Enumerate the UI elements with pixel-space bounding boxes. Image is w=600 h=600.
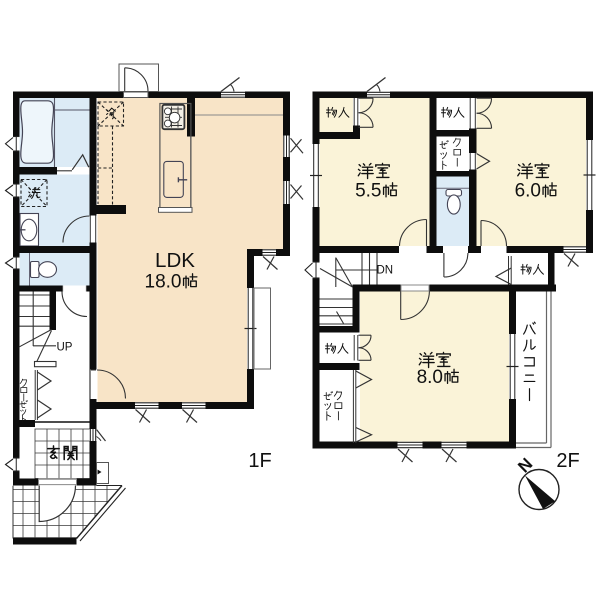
svg-text:6.0: 6.0 bbox=[515, 181, 541, 202]
svg-text:8.0: 8.0 bbox=[417, 367, 443, 388]
svg-text:5.5: 5.5 bbox=[355, 181, 381, 202]
svg-text:DN: DN bbox=[377, 265, 394, 277]
svg-text:18.0: 18.0 bbox=[145, 272, 182, 293]
svg-text:1F: 1F bbox=[248, 450, 271, 472]
svg-text:UP: UP bbox=[57, 342, 73, 354]
svg-text:N: N bbox=[514, 454, 536, 476]
svg-text:LDK: LDK bbox=[155, 249, 195, 272]
svg-text:2F: 2F bbox=[556, 450, 579, 472]
